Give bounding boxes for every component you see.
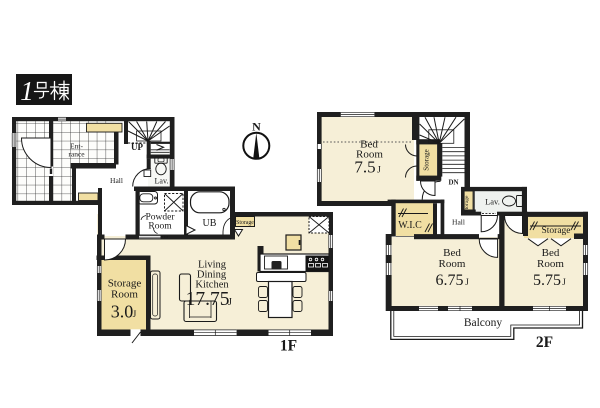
svg-text:J: J — [377, 166, 381, 176]
svg-text:1: 1 — [20, 76, 34, 106]
svg-text:Storage: Storage — [236, 220, 254, 226]
svg-text:Balcony: Balcony — [464, 317, 503, 329]
svg-text:Room: Room — [111, 289, 138, 301]
svg-text:17.75: 17.75 — [186, 289, 230, 310]
svg-text:N: N — [252, 120, 261, 134]
svg-text:Storage: Storage — [423, 149, 431, 170]
svg-text:6.75: 6.75 — [436, 272, 464, 289]
svg-text:5.75: 5.75 — [533, 272, 561, 289]
svg-text:Storage: Storage — [541, 226, 570, 236]
svg-text:J: J — [228, 297, 232, 308]
svg-text:3.0: 3.0 — [111, 302, 134, 322]
svg-text:Room: Room — [439, 258, 466, 270]
svg-text:1F: 1F — [280, 338, 297, 355]
svg-text:J: J — [133, 310, 137, 320]
svg-text:2F: 2F — [536, 334, 553, 351]
svg-text:Lav.: Lav. — [485, 197, 500, 207]
svg-text:Storage: Storage — [464, 195, 470, 212]
svg-text:UP: UP — [131, 142, 143, 152]
svg-text:J: J — [465, 277, 469, 287]
svg-text:rance: rance — [68, 150, 85, 159]
svg-text:UB: UB — [203, 218, 217, 229]
svg-text:J: J — [562, 277, 566, 287]
svg-text:W.I.C: W.I.C — [398, 220, 422, 231]
svg-text:Lav.: Lav. — [155, 177, 169, 186]
svg-text:Hall: Hall — [110, 176, 123, 185]
svg-text:Room: Room — [537, 258, 564, 270]
svg-text:Hall: Hall — [452, 218, 465, 227]
svg-text:DN: DN — [448, 179, 458, 187]
svg-text:Room: Room — [148, 222, 172, 232]
svg-text:7.5: 7.5 — [354, 158, 375, 177]
